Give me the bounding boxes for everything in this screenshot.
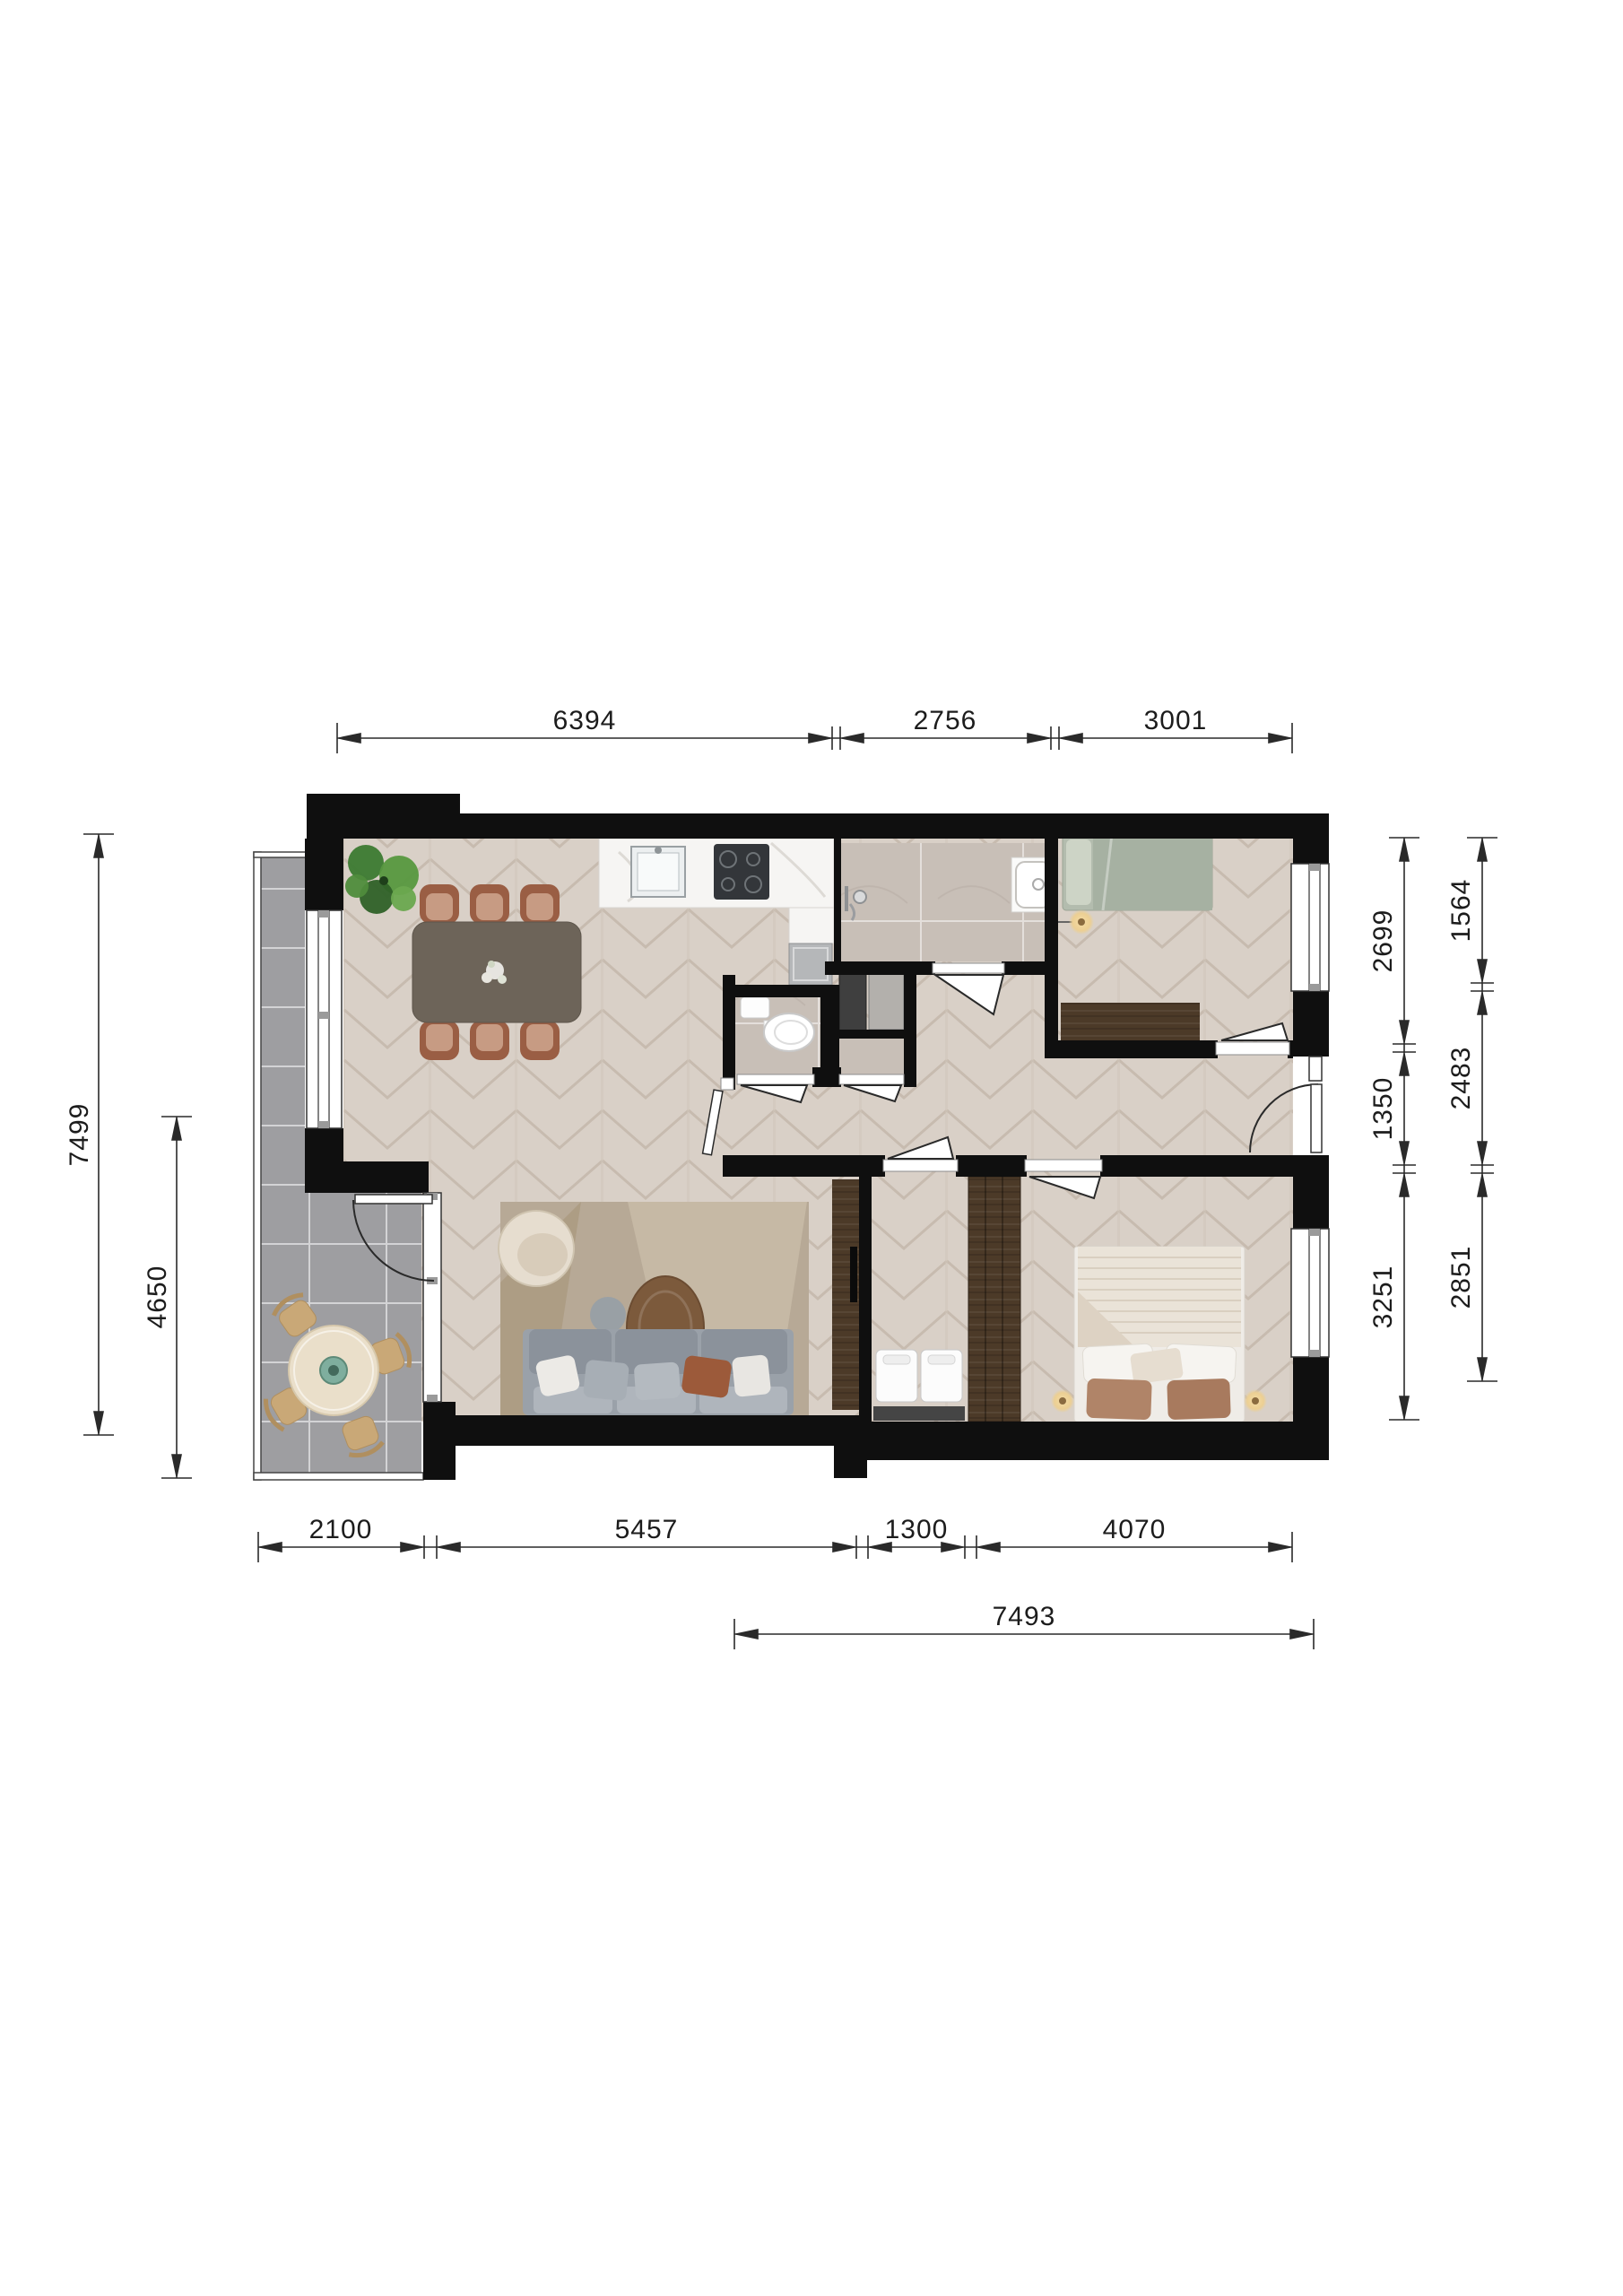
living-room — [499, 1179, 859, 1437]
entrance-door-leaf — [1311, 1084, 1322, 1152]
wall-bedroom1-south — [1058, 1040, 1218, 1058]
dim-right-outer-3: 2851 — [1446, 1246, 1476, 1309]
glass-wall-living-west — [423, 1193, 441, 1402]
dim-right-inner-3: 3251 — [1368, 1265, 1398, 1329]
desk — [1061, 1003, 1200, 1042]
dining-chair-seat — [426, 1024, 453, 1051]
bedside-lamp-bulb — [1252, 1397, 1259, 1405]
wall-top — [307, 813, 1329, 839]
pendant-lamp-bulb — [1078, 918, 1085, 926]
dim-right-inner-1: 2699 — [1368, 909, 1398, 973]
wall-living-south — [453, 1415, 867, 1446]
faucet-icon — [655, 847, 662, 854]
dining-chair-seat — [526, 893, 553, 920]
floor-plan-page: 6394 2756 3001 7499 4650 2699 1350 3251 … — [0, 0, 1623, 2296]
washer-panel — [883, 1355, 910, 1364]
dim-left-1: 7499 — [65, 1103, 94, 1167]
threshold-bathroom — [933, 963, 1004, 973]
threshold-bedroom1 — [1216, 1042, 1289, 1055]
bedside-lamp-bulb — [1059, 1397, 1066, 1405]
tv — [850, 1247, 857, 1302]
wall-bedroom2-south — [867, 1422, 1329, 1460]
wardrobe — [968, 1177, 1020, 1422]
dim-right-outer-2: 2483 — [1446, 1047, 1476, 1110]
wall-wc-north — [723, 985, 837, 997]
cooktop — [714, 844, 769, 900]
wall-east-2 — [1293, 991, 1329, 1057]
dim-top-1: 6394 — [553, 706, 617, 735]
shaft-light — [869, 969, 904, 1030]
window-bedroom2 — [1291, 1229, 1329, 1357]
toilet-tank — [741, 997, 769, 1018]
dim-top-3: 3001 — [1144, 706, 1208, 735]
wall-tv — [859, 1155, 872, 1422]
wall-step — [305, 1161, 429, 1193]
armchair-seat — [517, 1233, 568, 1276]
threshold-closet — [839, 1074, 904, 1084]
dim-bottom-4: 4070 — [1103, 1515, 1167, 1544]
closet-floor — [839, 1039, 904, 1074]
sofa — [523, 1329, 794, 1415]
threshold-hall — [721, 1078, 733, 1090]
laundry-mat — [873, 1406, 965, 1421]
window-kitchen-west — [307, 910, 342, 1128]
dining-chairs-top — [420, 884, 560, 924]
threshold-bedroom2 — [1025, 1160, 1102, 1171]
dim-bottom-1: 2100 — [309, 1515, 373, 1544]
window-bedroom1 — [1291, 864, 1329, 991]
wall-bathroom-south-b — [1002, 961, 1045, 975]
sofa-pillow — [634, 1361, 681, 1400]
dim-bottom-total: 7493 — [993, 1602, 1056, 1631]
balcony-railing-south — [254, 1473, 423, 1480]
wall-east-4 — [1293, 1357, 1329, 1422]
wall-shaft-divider — [837, 1030, 907, 1039]
bed-pillow — [1066, 839, 1091, 905]
wall-bathroom-south-a — [825, 961, 935, 975]
wall-hall-south-c — [1100, 1155, 1296, 1177]
balcony-door-leaf — [355, 1195, 432, 1204]
wall-wc-east — [820, 985, 839, 1074]
kitchen-counter-east — [789, 908, 834, 944]
bed-pillow-terracotta — [1086, 1378, 1151, 1420]
sofa-pillow — [583, 1360, 629, 1402]
dim-right-inner-2: 1350 — [1368, 1077, 1398, 1141]
dim-top-2: 2756 — [914, 706, 977, 735]
threshold-niche — [883, 1160, 958, 1171]
wall-kitchen-west-upper — [305, 839, 343, 910]
kitchen-sink-basin — [638, 853, 679, 891]
floor-plan-drawing: 6394 2756 3001 7499 4650 2699 1350 3251 … — [0, 0, 1623, 2296]
dryer-panel — [928, 1355, 955, 1364]
wall-hall-south-b — [956, 1155, 1027, 1177]
dim-right-outer-1: 1564 — [1446, 879, 1476, 943]
shower-mixer-icon — [854, 891, 866, 903]
wall-east-1 — [1293, 813, 1329, 864]
dining-chair-seat — [526, 1024, 553, 1051]
wall-shaft-east — [904, 969, 916, 1087]
bed-pillow-terracotta — [1167, 1378, 1230, 1420]
wall-bathroom-west — [834, 839, 841, 961]
balcony-railing-west — [254, 852, 261, 1480]
sofa-pillow — [681, 1355, 732, 1399]
dim-bottom-3: 1300 — [885, 1515, 949, 1544]
side-table — [590, 1297, 626, 1333]
wall-south-stub — [812, 1067, 841, 1087]
threshold-wc — [737, 1074, 814, 1084]
dining-chair-seat — [426, 893, 453, 920]
dim-bottom-2: 5457 — [615, 1515, 679, 1544]
balcony-railing-north — [254, 852, 308, 857]
dining-chair-seat — [476, 1024, 503, 1051]
table-tray-cup — [328, 1365, 339, 1376]
wall-east-3 — [1293, 1155, 1329, 1229]
dim-left-2: 4650 — [143, 1265, 172, 1329]
shaft-dark — [839, 969, 866, 1031]
wall-south-step — [834, 1415, 867, 1478]
sofa-pillow — [732, 1354, 771, 1397]
wall-bedroom1-west — [1045, 839, 1058, 1058]
entrance-sidelight — [1309, 1057, 1322, 1081]
dining-chair-seat — [476, 893, 503, 920]
wall-corner-block — [423, 1402, 456, 1480]
dining-chairs-bottom — [420, 1021, 560, 1060]
